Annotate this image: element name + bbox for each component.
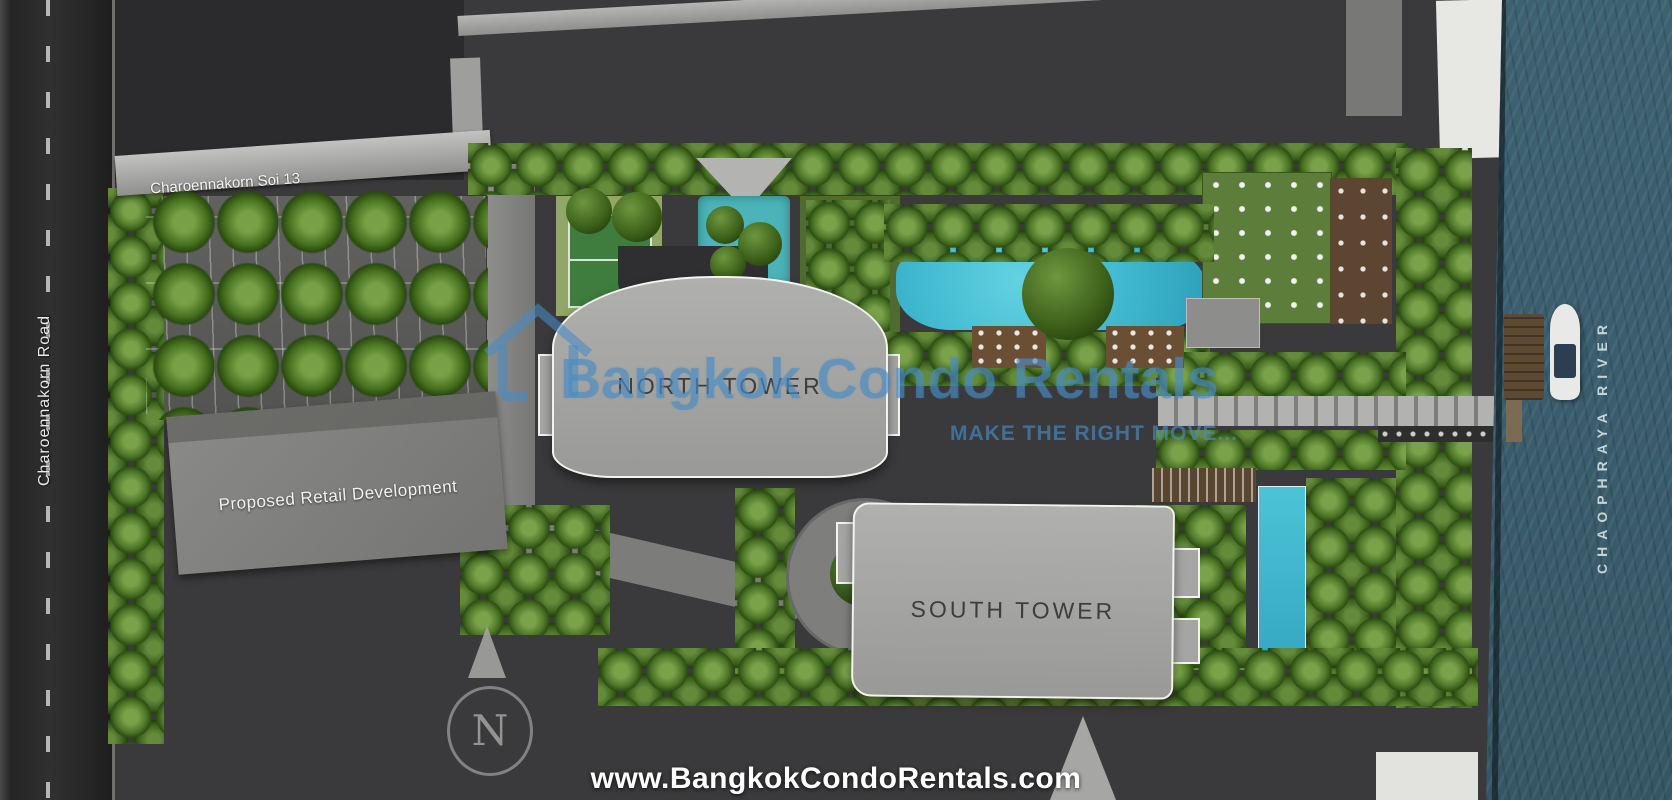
pergola: [1152, 468, 1256, 502]
north-tower: NORTH TOWER: [552, 276, 888, 478]
retail-label: Proposed Retail Development: [218, 477, 458, 516]
river-label: CHAOPHRAYA RIVER: [1594, 222, 1610, 574]
clubhouse: [1186, 298, 1260, 348]
boat-icon: [1550, 304, 1580, 400]
north-arrow-icon: [468, 626, 506, 678]
retail-building: Proposed Retail Development: [166, 391, 507, 574]
south-tower-label: SOUTH TOWER: [910, 595, 1115, 624]
large-tree: [1022, 248, 1114, 340]
tree: [566, 188, 612, 234]
walkway-to-pier: [1158, 396, 1508, 426]
pier-icon: [1506, 398, 1522, 442]
tree: [612, 192, 662, 242]
roof-deck: [1330, 178, 1392, 324]
riverside-building: [1436, 0, 1508, 159]
lap-pool: [1258, 486, 1306, 662]
north-boundary-wall: [457, 0, 1489, 36]
lounger-deck: [1106, 326, 1184, 368]
lounger-deck: [972, 326, 1046, 368]
compass-letter: N: [472, 710, 509, 752]
corner-building: [1346, 0, 1402, 116]
boat-cabin: [1554, 344, 1576, 378]
north-tower-label: NORTH TOWER: [617, 373, 823, 400]
footer-url: www.BangkokCondoRentals.com: [0, 762, 1672, 796]
pontoon-dock: [1504, 314, 1544, 400]
seawall: [1378, 426, 1496, 442]
garden-row: [1156, 352, 1406, 396]
garden-row: [1156, 430, 1406, 470]
charoennakorn-road-label: Charoennakorn Road: [36, 248, 54, 486]
south-tower: SOUTH TOWER: [851, 502, 1175, 699]
site-plan: Charoennakorn Road Charoennakorn Soi 13 …: [0, 0, 1672, 800]
parking-trees: [152, 186, 488, 420]
charoennakorn-road: [0, 0, 115, 800]
